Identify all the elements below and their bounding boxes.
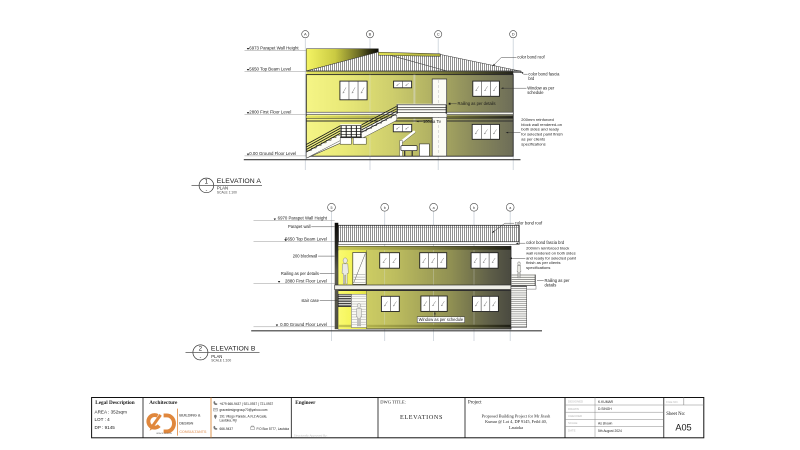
- svg-text:ELEVATION A: ELEVATION A: [217, 178, 262, 185]
- svg-text:200 blockwall: 200 blockwall: [293, 254, 318, 259]
- svg-text:DWG TITLE:: DWG TITLE:: [380, 400, 406, 405]
- svg-text:color bond roof: color bond roof: [515, 221, 543, 226]
- svg-text:Railing as per details: Railing as per details: [281, 271, 319, 276]
- svg-text:DESIGNED: DESIGNED: [568, 400, 583, 404]
- svg-text:Lautoka, Fiji: Lautoka, Fiji: [220, 418, 237, 422]
- svg-text:D: D: [512, 32, 515, 37]
- svg-text:6970 Parapet Wall Height: 6970 Parapet Wall Height: [278, 216, 328, 221]
- svg-text:GRACE DESIGN: GRACE DESIGN: [156, 432, 172, 435]
- svg-text:LOT : 4: LOT : 4: [95, 417, 111, 422]
- svg-text:SCALE: SCALE: [568, 421, 578, 425]
- svg-text:2800 First Floor Level: 2800 First Floor Level: [249, 109, 291, 114]
- svg-text:CONSULTANTS: CONSULTANTS: [179, 429, 207, 434]
- svg-text:Railing as per details: Railing as per details: [458, 101, 496, 106]
- svg-text:2: 2: [199, 346, 203, 353]
- svg-text:details: details: [545, 283, 557, 288]
- svg-text:a: a: [509, 206, 511, 210]
- svg-text:0.00 Ground Floor Level: 0.00 Ground Floor Level: [249, 151, 296, 156]
- svg-text:6973 Parapet Wall Height: 6973 Parapet Wall Height: [249, 45, 299, 50]
- svg-text:P.O Box 5777, Lautoka: P.O Box 5777, Lautoka: [257, 427, 290, 431]
- svg-text:C: C: [437, 32, 440, 37]
- svg-text:schedule: schedule: [527, 90, 544, 95]
- svg-text:5: 5: [331, 206, 333, 210]
- svg-text:CHECKED: CHECKED: [568, 414, 582, 418]
- svg-text:ELEVATION B: ELEVATION B: [211, 345, 256, 352]
- svg-text:a: a: [433, 206, 435, 210]
- svg-text:BUILDING &: BUILDING &: [179, 412, 201, 417]
- svg-text:5650 Top Beam Level: 5650 Top Beam Level: [285, 237, 327, 242]
- svg-text:Parapet wall: Parapet wall: [288, 224, 311, 229]
- svg-text:specifications: specifications: [526, 265, 550, 270]
- svg-text:2880 First Floor Level: 2880 First Floor Level: [285, 278, 327, 283]
- svg-text:ELEVATIONS: ELEVATIONS: [400, 414, 443, 421]
- svg-text:b: b: [473, 206, 475, 210]
- svg-text:Structurally Approved By:: Structurally Approved By:: [294, 433, 328, 437]
- svg-text:Proposed Building Project for: Proposed Building Project for Mr Jitesh: [482, 414, 551, 419]
- svg-text:Engineer: Engineer: [295, 400, 316, 406]
- svg-text:+679 666-9437 | 921-0937 |: +679 666-9437 | 921-0937 | 721-0937: [220, 402, 274, 406]
- svg-text:Architecture: Architecture: [149, 400, 178, 406]
- svg-text:5650 Top Beam Level: 5650 Top Beam Level: [249, 66, 291, 71]
- svg-text:D.SINGH: D.SINGH: [598, 407, 612, 411]
- svg-text:b: b: [384, 206, 386, 210]
- svg-text:DP : 9145: DP : 9145: [95, 425, 116, 430]
- svg-text:DATE: DATE: [568, 429, 576, 433]
- svg-text:5th August 2024: 5th August 2024: [598, 429, 622, 433]
- svg-text:Legal Description: Legal Description: [95, 400, 134, 406]
- svg-text:color bond roof: color bond roof: [517, 55, 545, 60]
- svg-text:100dia Tv: 100dia Tv: [423, 119, 442, 124]
- svg-text:As shown: As shown: [598, 421, 612, 425]
- svg-text:SCALE 1:100: SCALE 1:100: [211, 359, 231, 363]
- svg-text:SCALE 1:100: SCALE 1:100: [217, 191, 237, 195]
- svg-text:A: A: [304, 32, 307, 37]
- svg-text:brd: brd: [528, 76, 535, 81]
- svg-text:A05: A05: [675, 422, 691, 432]
- svg-text:FILE NO.: FILE NO.: [666, 400, 678, 404]
- svg-text:1: 1: [205, 179, 209, 186]
- svg-text:Sheet No:: Sheet No:: [666, 412, 685, 417]
- svg-text:AREA : 352sqm: AREA : 352sqm: [95, 410, 128, 415]
- svg-text:666-9437: 666-9437: [220, 427, 234, 431]
- svg-text:DESIGN: DESIGN: [179, 421, 193, 426]
- svg-text:stair case: stair case: [301, 298, 319, 303]
- svg-text:gracedesigngroup70@yahoo.com: gracedesigngroup70@yahoo.com: [220, 408, 268, 412]
- svg-text:K.KUMAR: K.KUMAR: [598, 400, 614, 404]
- svg-text:0.00 Ground Floor Level: 0.00 Ground Floor Level: [280, 322, 327, 327]
- svg-text:Lautoka: Lautoka: [509, 425, 523, 430]
- svg-text:B: B: [369, 32, 372, 37]
- svg-text:color bond fascia brd: color bond fascia brd: [526, 240, 565, 245]
- svg-text:DRAWN: DRAWN: [568, 407, 579, 411]
- svg-text:specifications: specifications: [521, 141, 545, 146]
- svg-text:Project: Project: [468, 401, 482, 406]
- svg-text:Window as per schedule: Window as per schedule: [419, 317, 464, 322]
